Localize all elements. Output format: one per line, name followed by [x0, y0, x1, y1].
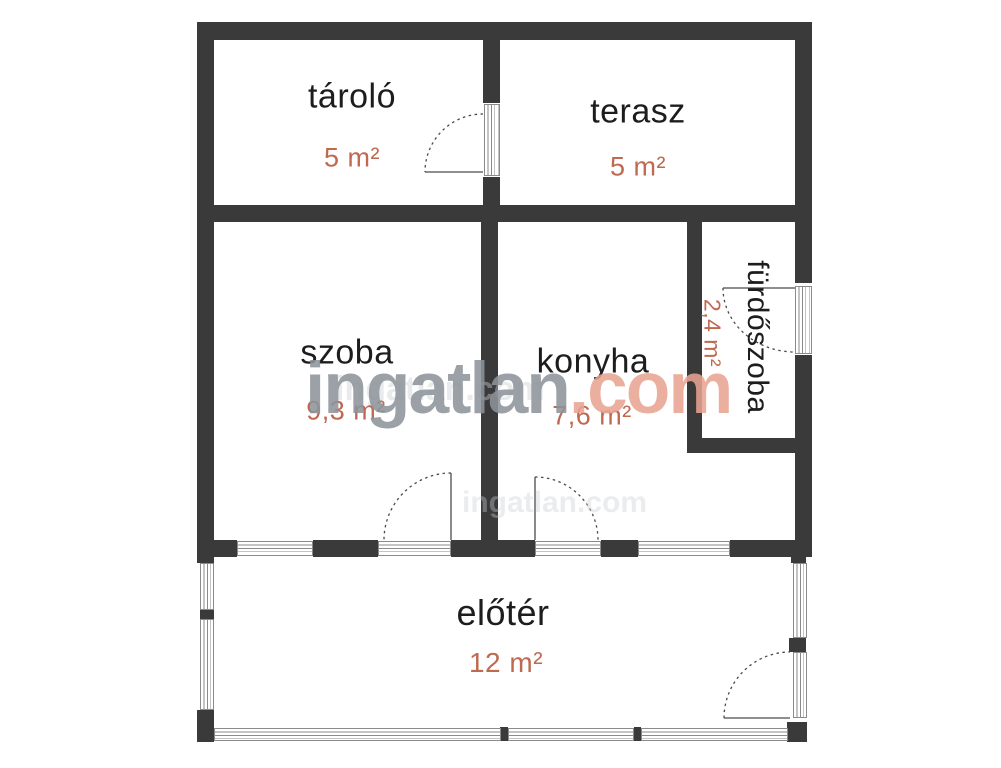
ghost-watermark-2: ingatlan.com — [462, 488, 647, 518]
post-right-bottom-corner — [787, 722, 807, 742]
room-label-tarolo: tároló — [308, 78, 396, 117]
room-label-eloter: előtér — [456, 592, 549, 634]
watermark-brand: ingatlan — [305, 348, 569, 429]
room-area-terasz: 5 m² — [610, 152, 666, 183]
wall-right-upper — [795, 40, 812, 283]
door-leaf-szoba — [378, 541, 451, 556]
room-area-tarolo: 5 m² — [324, 143, 380, 174]
door-swing-arc-tarolo — [425, 114, 483, 172]
ingatlan-watermark: ingatlan.com — [305, 352, 731, 425]
door-swing-arc-szoba — [384, 473, 451, 540]
wall-mid-horizontal — [197, 205, 812, 222]
post-bottom-1 — [500, 727, 508, 741]
window-veranda-bottom-3 — [641, 728, 788, 741]
post-left-bottom-corner — [197, 710, 214, 742]
wall-bottom-e — [730, 540, 812, 557]
post-left-mid — [200, 610, 214, 619]
door-leaf-tarolo — [484, 104, 500, 176]
floorplan: ingatlan.com ingatlan.com tároló 5 m² te… — [0, 0, 1001, 768]
wall-bathroom-bottom — [687, 438, 795, 453]
door-swing-arc-entrance — [724, 652, 790, 718]
door-leaf-konyha — [535, 541, 601, 556]
post-bottom-2 — [634, 727, 641, 741]
door-leaf-bathroom — [795, 286, 812, 354]
window-bottomwall-left — [237, 541, 313, 556]
window-veranda-left-1 — [200, 563, 214, 610]
post-right-mid — [789, 638, 806, 652]
wall-bottom-a — [197, 540, 237, 557]
room-label-terasz: terasz — [590, 93, 686, 132]
wall-top — [197, 22, 812, 40]
room-area-eloter: 12 m² — [469, 647, 543, 679]
window-veranda-right — [793, 563, 807, 638]
wall-bottom-d — [601, 540, 638, 557]
wall-divider-tarolo-terasz-lower — [483, 177, 500, 205]
watermark-suffix: .com — [569, 348, 731, 429]
wall-left — [197, 40, 214, 557]
window-veranda-bottom-1 — [214, 728, 501, 741]
window-veranda-left-2 — [200, 619, 214, 710]
window-bottomwall-right — [638, 541, 730, 556]
wall-divider-tarolo-terasz-upper — [483, 40, 500, 103]
door-leaf-entrance — [793, 652, 807, 718]
window-veranda-bottom-2 — [508, 728, 634, 741]
wall-bottom-c — [451, 540, 535, 557]
wall-right-lower — [795, 355, 812, 557]
wall-bottom-b — [313, 540, 378, 557]
room-label-furdoszoba: fürdőszoba — [740, 260, 774, 413]
